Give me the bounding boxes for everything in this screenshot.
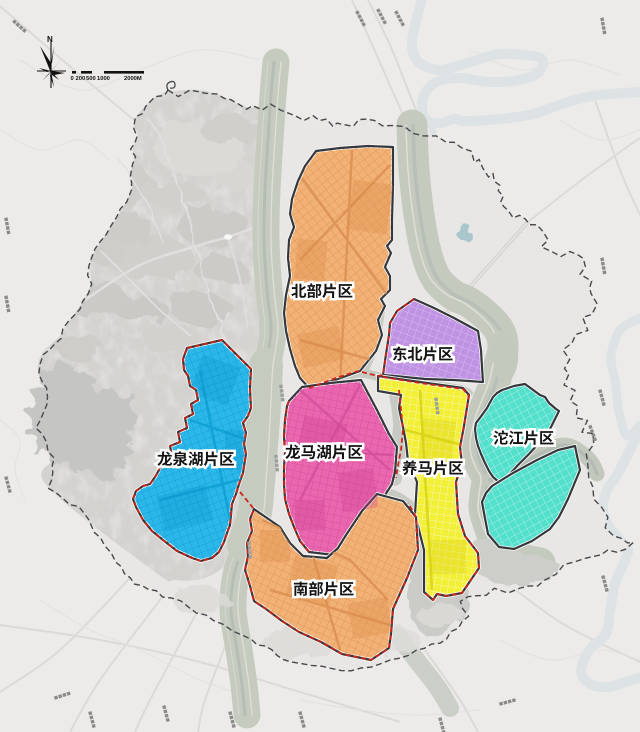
- svg-text:2000M: 2000M: [124, 76, 142, 82]
- svg-text:0: 0: [71, 76, 74, 82]
- svg-text:N: N: [47, 35, 53, 44]
- svg-text:1000: 1000: [97, 76, 110, 82]
- svg-text:200: 200: [76, 76, 86, 82]
- svg-text:500: 500: [86, 76, 96, 82]
